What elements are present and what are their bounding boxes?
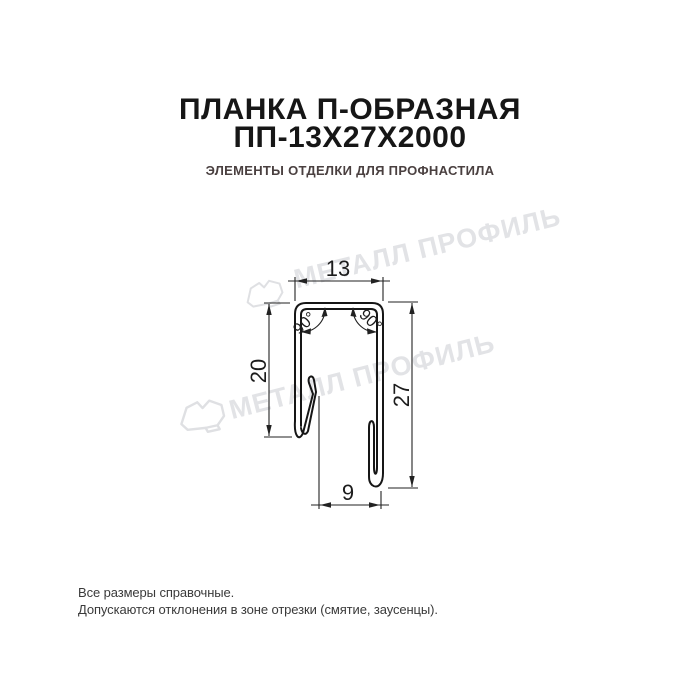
footer-notes: Все размеры справочные. Допускаются откл… <box>78 585 438 618</box>
spec-sheet-page: МЕТАЛЛ ПРОФИЛЬ МЕТАЛЛ ПРОФИЛЬ ПЛАНКА П-О… <box>0 0 700 700</box>
dim-label-left: 20 <box>246 359 271 383</box>
arrowhead <box>266 425 271 436</box>
angle-label-right: 90° <box>356 306 385 335</box>
profile-right-hem-inner-fold <box>374 467 377 474</box>
dim-label-bottom: 9 <box>342 480 354 505</box>
dim-label-top: 13 <box>326 256 350 281</box>
arrowhead <box>296 278 307 283</box>
arrowhead <box>369 502 380 507</box>
footer-note-line2: Допускаются отклонения в зоне отрезки (с… <box>78 602 438 619</box>
header: ПЛАНКА П-ОБРАЗНАЯ ПП-13Х27Х2000 ЭЛЕМЕНТЫ… <box>0 96 700 178</box>
arrowhead <box>371 278 382 283</box>
page-title-line2: ПП-13Х27Х2000 <box>0 124 700 152</box>
angle-annotation-right: 90° <box>351 306 385 335</box>
page-title-line1: ПЛАНКА П-ОБРАЗНАЯ <box>0 96 700 124</box>
profile-inner-contour <box>301 309 377 467</box>
dimension-right-height: 27 <box>388 302 418 488</box>
arrowhead <box>409 303 414 314</box>
arrowhead <box>409 476 414 487</box>
dimension-top-width: 13 <box>288 256 390 301</box>
arrowhead <box>320 502 331 507</box>
profile-left-hem <box>295 376 316 437</box>
footer-note-line1: Все размеры справочные. <box>78 585 438 602</box>
page-subtitle: ЭЛЕМЕНТЫ ОТДЕЛКИ ДЛЯ ПРОФНАСТИЛА <box>0 163 700 178</box>
arrowhead <box>266 304 271 315</box>
dimension-left-height: 20 <box>246 303 292 437</box>
dim-label-right: 27 <box>389 383 414 407</box>
